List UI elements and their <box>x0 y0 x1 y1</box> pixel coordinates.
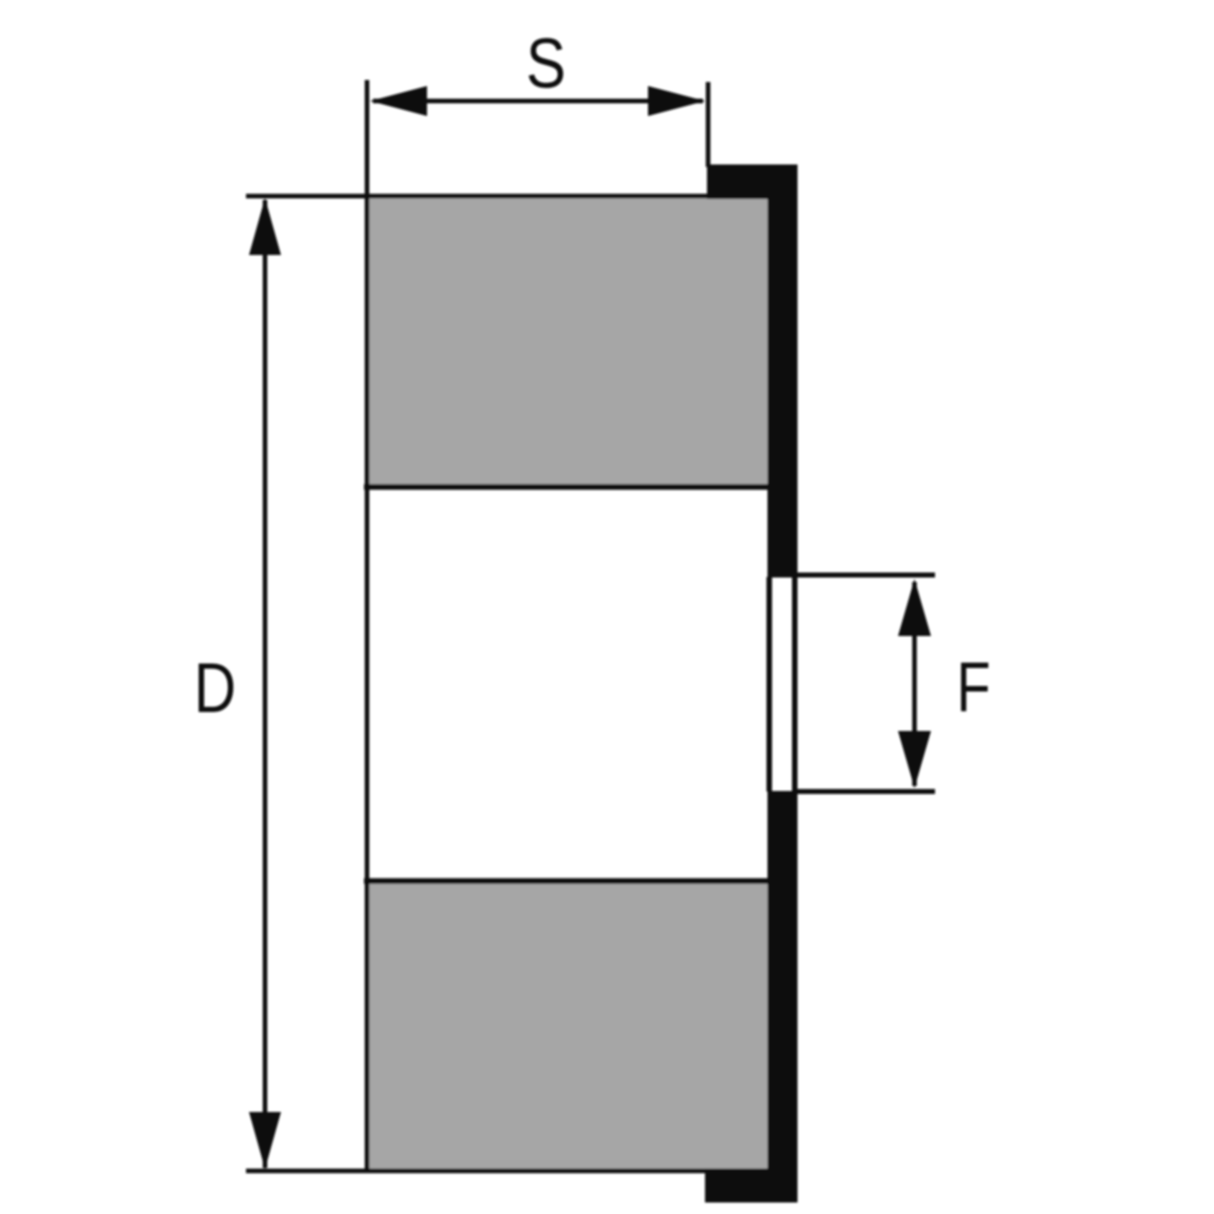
svg-text:D: D <box>194 648 236 728</box>
svg-text:S: S <box>526 24 566 103</box>
svg-text:F: F <box>956 648 990 727</box>
